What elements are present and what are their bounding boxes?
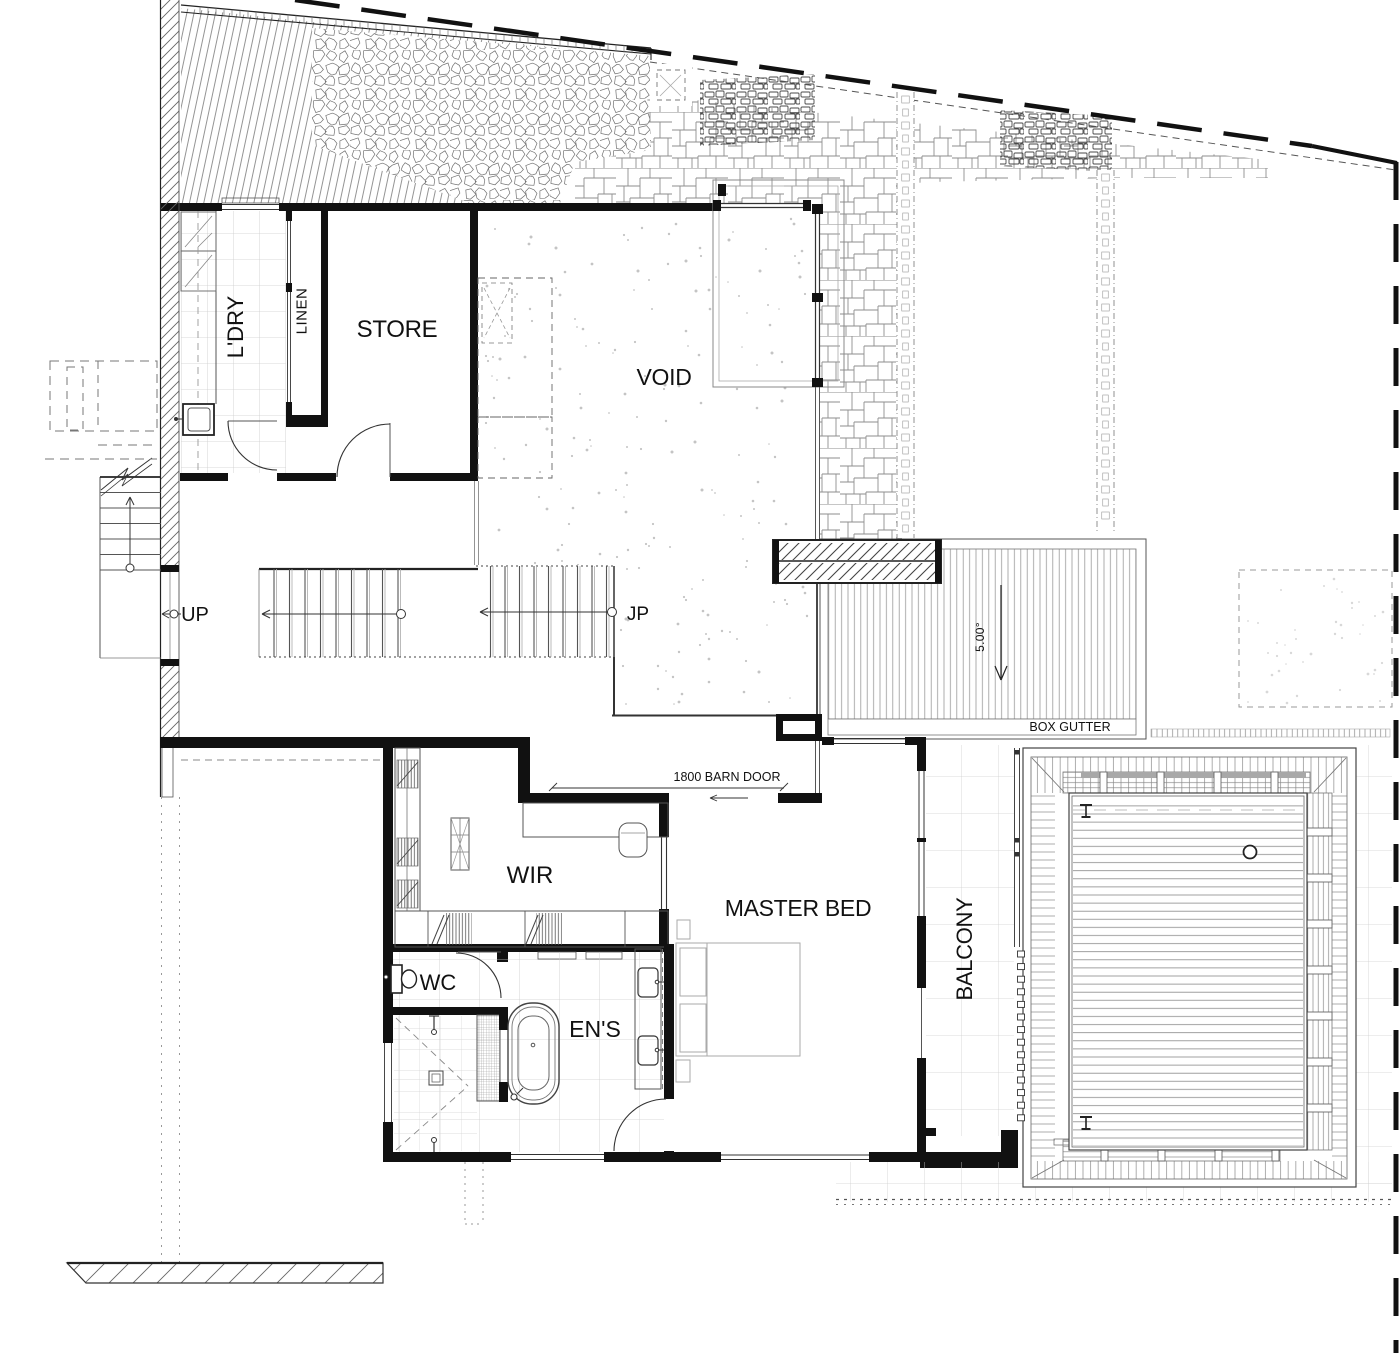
svg-text:EN'S: EN'S <box>569 1016 621 1042</box>
svg-text:1800 BARN DOOR: 1800 BARN DOOR <box>674 770 781 784</box>
svg-text:LINEN: LINEN <box>294 288 311 335</box>
svg-text:BALCONY: BALCONY <box>952 897 977 1001</box>
svg-text:WC: WC <box>420 970 457 995</box>
svg-text:MASTER BED: MASTER BED <box>725 895 872 921</box>
svg-text:WIR: WIR <box>507 862 554 889</box>
svg-text:BOX GUTTER: BOX GUTTER <box>1029 720 1110 734</box>
svg-text:JP: JP <box>627 604 649 625</box>
svg-text:VOID: VOID <box>636 364 691 390</box>
svg-text:L'DRY: L'DRY <box>223 295 248 358</box>
svg-text:5.00°: 5.00° <box>973 622 987 652</box>
svg-text:STORE: STORE <box>357 316 438 343</box>
svg-text:UP: UP <box>181 604 209 626</box>
